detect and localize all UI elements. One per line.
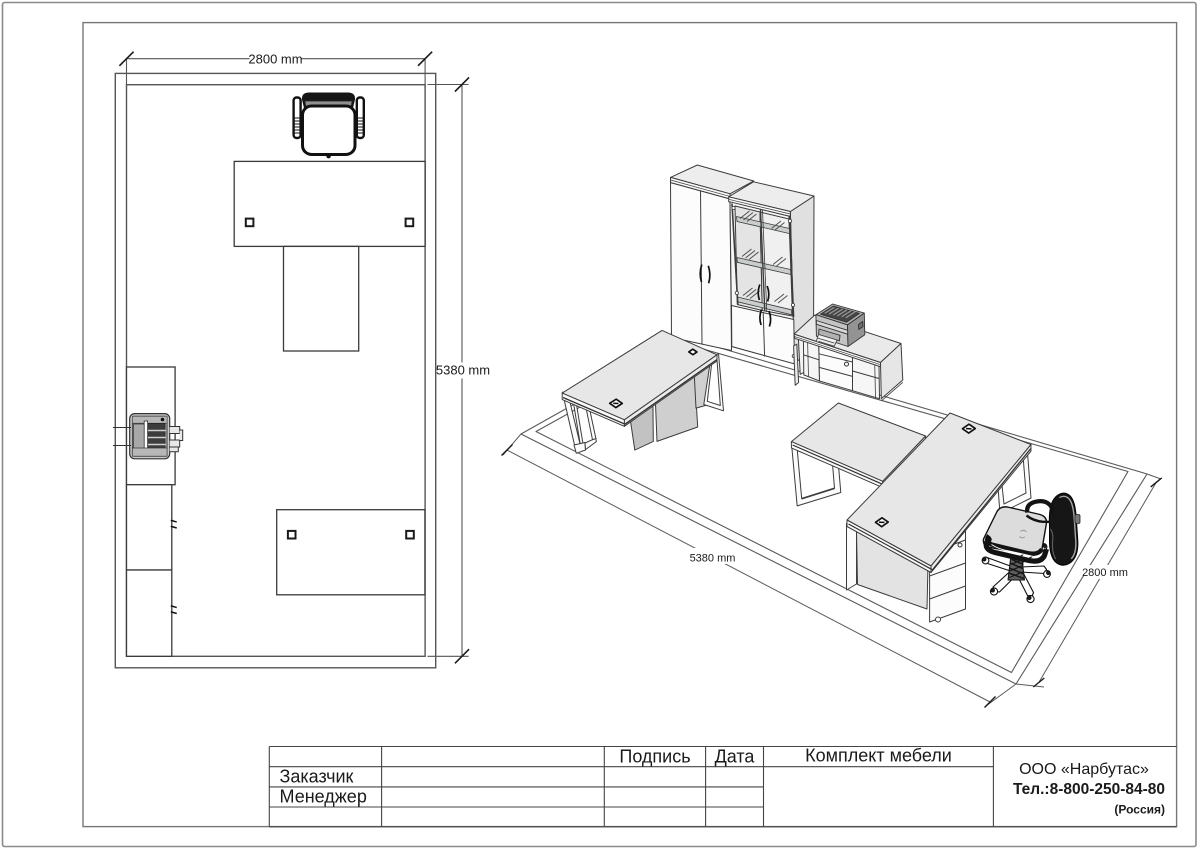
svg-text:2800 mm: 2800 mm [1082,567,1128,579]
svg-text:(Россия): (Россия) [1114,803,1165,817]
svg-text:Подпись: Подпись [619,747,690,767]
svg-text:Менеджер: Менеджер [280,787,367,807]
svg-text:5380 mm: 5380 mm [436,363,490,378]
svg-text:5380 mm: 5380 mm [690,553,736,565]
svg-text:Заказчик: Заказчик [280,767,354,787]
svg-text:Тел.:8-800-250-84-80: Тел.:8-800-250-84-80 [1013,781,1165,798]
svg-text:Комплект мебели: Комплект мебели [805,746,952,766]
svg-text:ООО «Нарбутас»: ООО «Нарбутас» [1019,761,1149,778]
svg-text:2800 mm: 2800 mm [248,52,302,67]
svg-text:Дата: Дата [715,747,756,767]
